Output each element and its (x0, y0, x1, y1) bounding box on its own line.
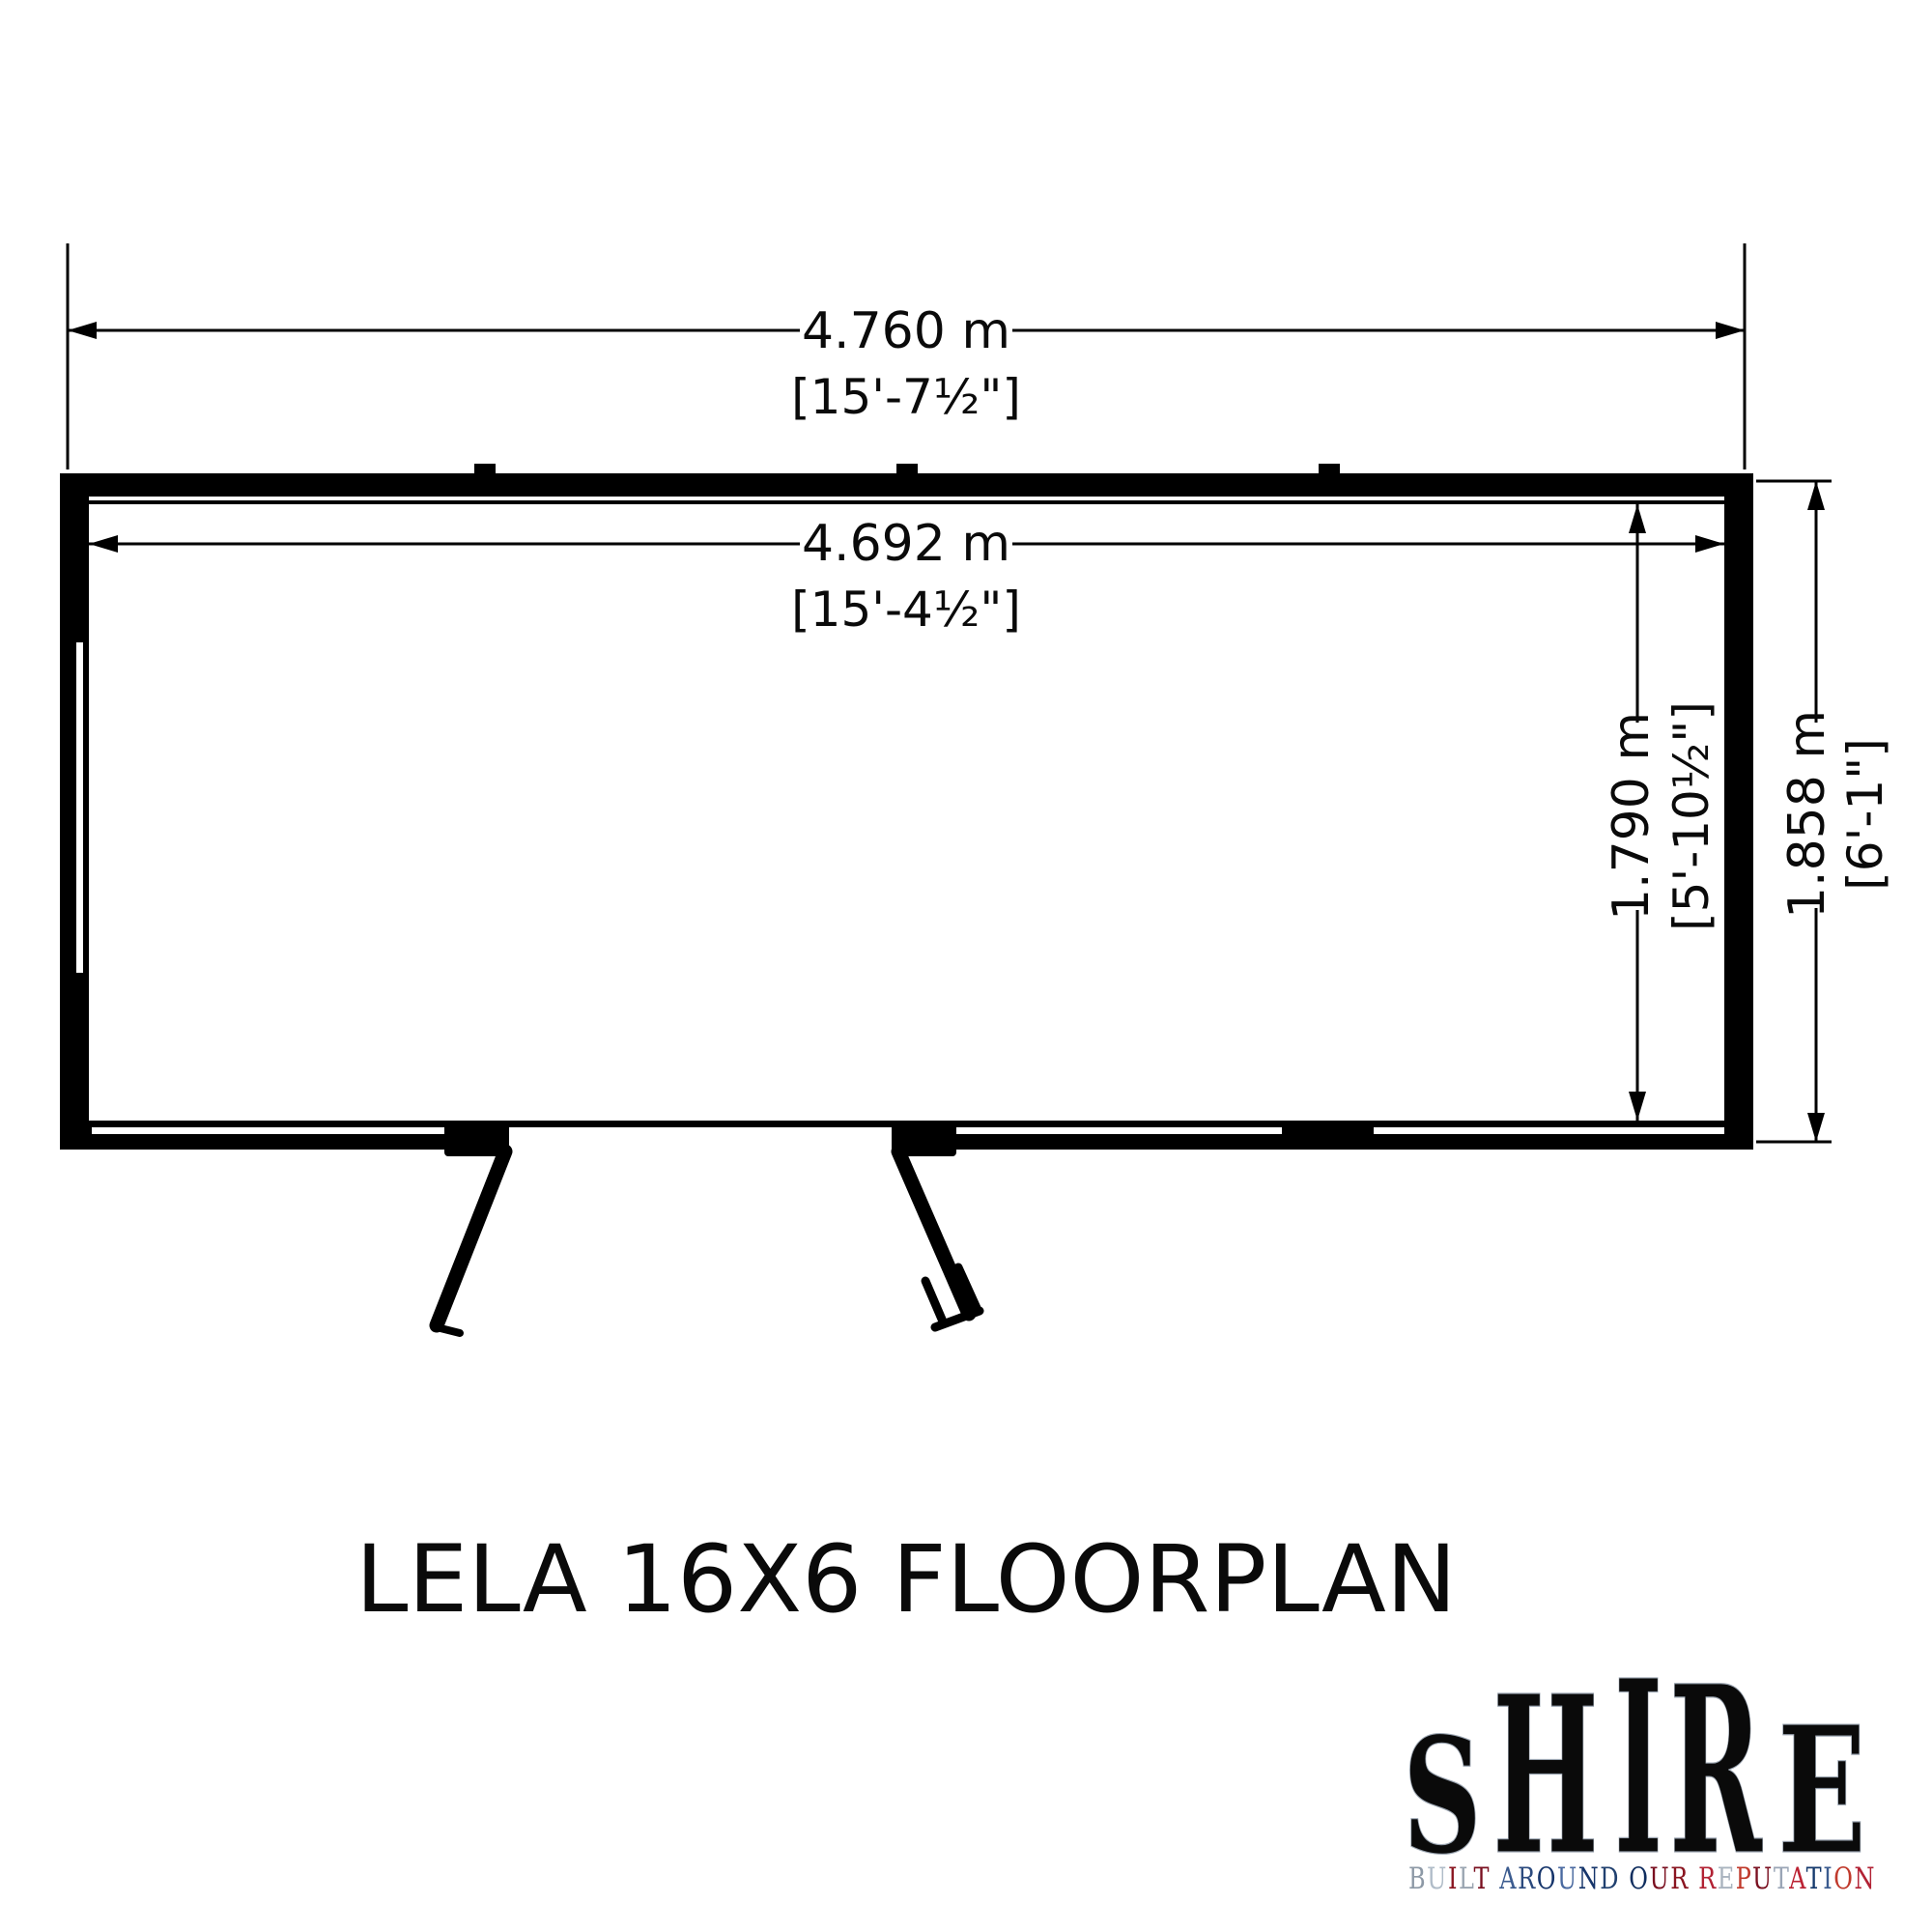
roof-tick-3 (1319, 464, 1340, 474)
dim-overall-width-imperial: [15'-7½"] (791, 369, 1021, 425)
dim-internal-width-metric: 4.692 m (802, 515, 1010, 573)
page-title: LELA 16X6 FLOORPLAN (355, 1525, 1457, 1634)
wall-top-inner-line (89, 500, 1724, 504)
dim-arrow-top (1629, 504, 1646, 533)
window-left-glazing (76, 642, 83, 973)
dim-arrow-bottom (1807, 1113, 1825, 1142)
floorplan-page: 4.760 m [15'-7½"] 4.692 m [15'-4½"] 1.79… (0, 0, 1932, 1932)
dim-overall-width-metric: 4.760 m (802, 302, 1010, 360)
dim-arrow-left (89, 535, 118, 553)
dim-arrow-top (1807, 481, 1825, 510)
wall-bottom-left-corner (60, 1121, 92, 1150)
double-door-open (437, 1151, 980, 1333)
door-leaf-left (437, 1151, 505, 1325)
dim-internal-depth-imperial: [5'-10½"] (1663, 701, 1719, 931)
dim-arrow-bottom (1629, 1092, 1646, 1121)
wall-left (60, 473, 89, 1150)
dim-overall-depth-imperial: [6'-1"] (1837, 738, 1893, 890)
door-handle-right-prong-1 (925, 1281, 943, 1321)
dim-arrow-left (68, 322, 97, 339)
window-bottom-mid-frame (956, 1134, 1282, 1150)
dim-internal-width-imperial: [15'-4½"] (791, 582, 1021, 638)
roof-tick-2 (896, 464, 918, 474)
dim-internal-depth-metric: 1.790 m (1603, 712, 1661, 921)
roof-tick-1 (474, 464, 496, 474)
dim-overall-depth-metric: 1.858 m (1778, 710, 1836, 919)
dim-arrow-right (1695, 535, 1724, 553)
floorplan-canvas: 4.760 m [15'-7½"] 4.692 m [15'-4½"] 1.79… (0, 0, 1932, 1932)
wall-right (1724, 473, 1753, 1150)
window-bottom-right-frame (1374, 1134, 1724, 1150)
wall-bottom-pier (1282, 1121, 1374, 1150)
dim-arrow-right (1716, 322, 1745, 339)
window-bottom-left-frame (92, 1134, 444, 1150)
shire-logo: S H I R E BUILT AROUND OUR REPUTATION (1403, 1629, 1876, 1909)
logo-tagline: BUILT AROUND OUR REPUTATION (1408, 1861, 1876, 1896)
wall-top (60, 473, 1753, 497)
door-leaf-left-foot (437, 1327, 460, 1333)
